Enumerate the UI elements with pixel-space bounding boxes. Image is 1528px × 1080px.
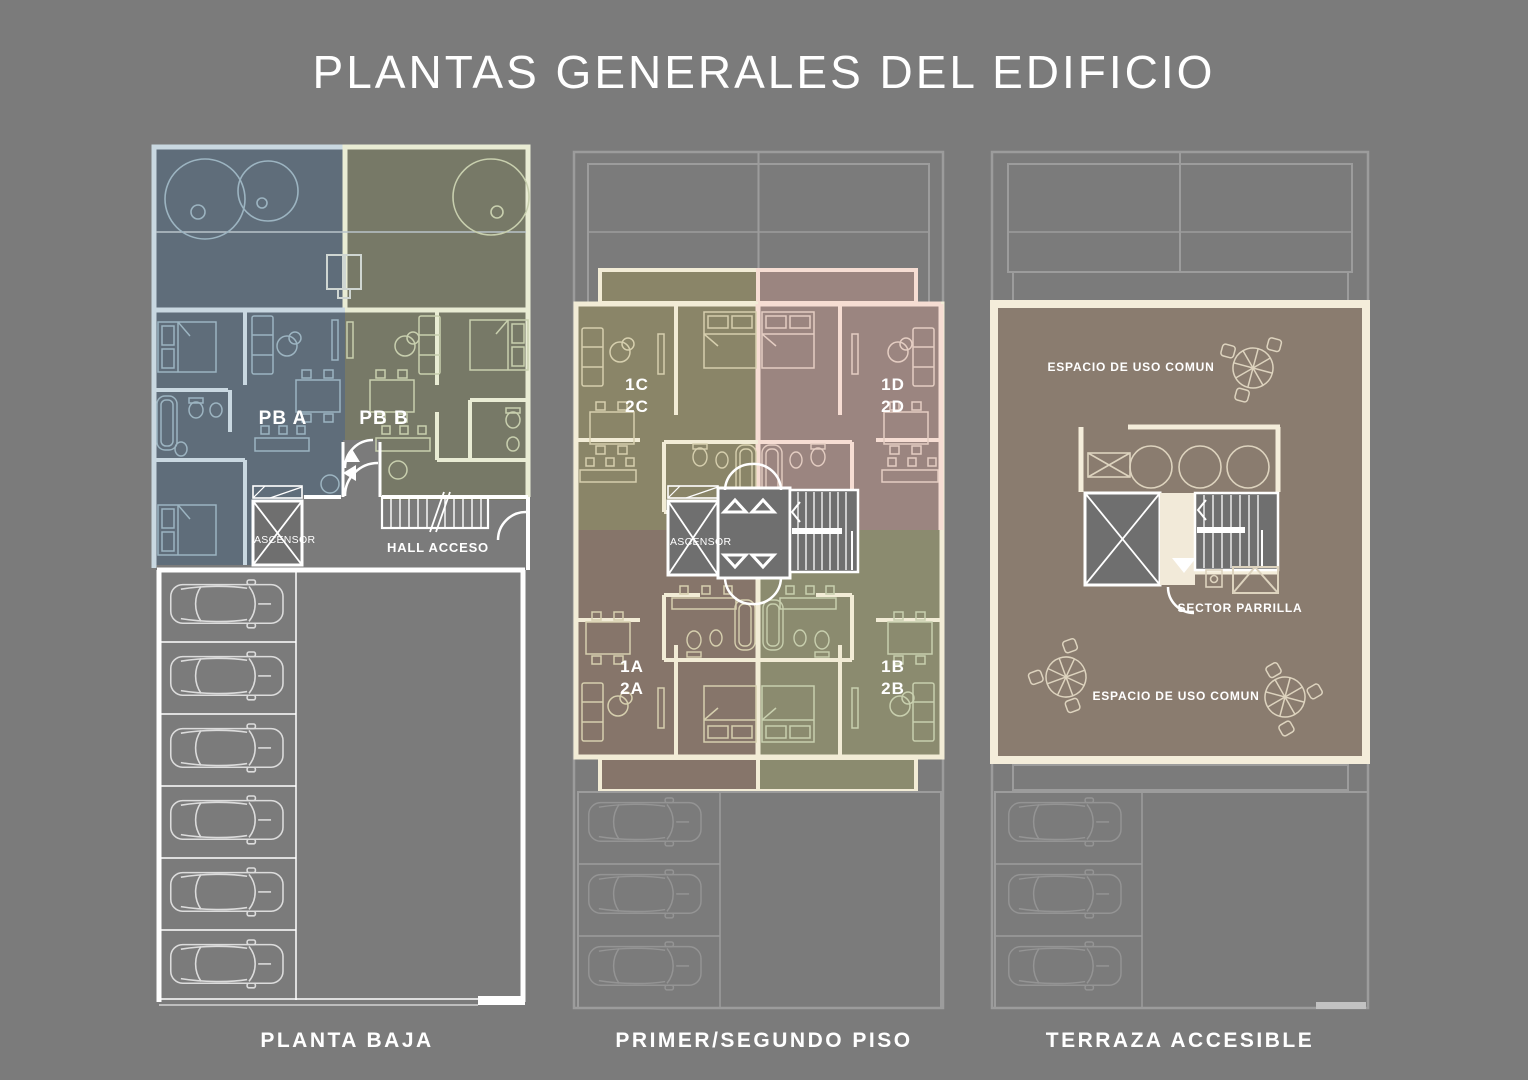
hall-door-arc — [498, 512, 526, 540]
core-landing — [1160, 493, 1195, 585]
plan-caption: PRIMER/SEGUNDO PISO — [615, 1029, 912, 1052]
plan-terraza: ESPACIO DE USO COMUN SECTOR PARRILLA ESP… — [992, 152, 1368, 1052]
car-icon — [589, 870, 701, 918]
elevator-label: ASCENSOR — [254, 534, 315, 546]
common-space-label-bottom: ESPACIO DE USO COMUN — [1092, 689, 1259, 703]
balcony — [600, 270, 758, 303]
floor-plans-canvas: PLANTAS GENERALES DEL EDIFICIO — [0, 0, 1528, 1080]
car-icon — [171, 868, 283, 916]
balcony — [758, 758, 916, 791]
unit-label-1c: 1C — [625, 375, 649, 394]
unit-label-2b: 2B — [881, 679, 905, 698]
unit-label-1b: 1B — [881, 657, 905, 676]
hall-label: HALL ACCESO — [387, 540, 489, 555]
plan-caption: PLANTA BAJA — [260, 1029, 433, 1052]
ghost-parking — [995, 765, 1368, 1009]
garden-pbb — [345, 145, 530, 310]
car-icon — [171, 796, 283, 844]
unit-label-2d: 2D — [881, 397, 905, 416]
car-icon — [589, 942, 701, 990]
garden-pba — [152, 145, 345, 310]
unit-label-pbb: PB B — [359, 408, 408, 429]
plan-planta-baja: ASCENSOR HALL ACCESO PB A PB B — [152, 145, 530, 1052]
stairs-icon — [790, 490, 858, 572]
parking-area — [157, 570, 525, 1005]
elevator-label: ASCENSOR — [670, 536, 731, 548]
car-icon — [171, 724, 283, 772]
unit-label-1d: 1D — [881, 375, 905, 394]
balcony — [758, 270, 916, 303]
elevator-icon — [253, 486, 302, 565]
plan-primer-segundo: ASCENSOR 1C 2C 1D 2D 1A 2A 1B 2B PRIMER/… — [574, 152, 943, 1052]
elevator-icon — [1085, 493, 1160, 585]
unit-label-2a: 2A — [620, 679, 644, 698]
page-title: PLANTAS GENERALES DEL EDIFICIO — [313, 46, 1216, 98]
unit-label-pba: PB A — [259, 408, 308, 429]
unit-label-1a: 1A — [620, 657, 644, 676]
car-icon — [1009, 870, 1121, 918]
landing — [718, 488, 790, 578]
ghost-parking — [578, 792, 941, 1008]
parrilla-label: SECTOR PARRILLA — [1178, 601, 1303, 615]
hall-floor — [302, 495, 345, 570]
car-icon — [1009, 798, 1121, 846]
common-space-label-top: ESPACIO DE USO COMUN — [1047, 360, 1214, 374]
stairs-icon — [1195, 493, 1278, 570]
car-icon — [171, 940, 283, 988]
car-icon — [171, 580, 283, 628]
car-icon — [171, 652, 283, 700]
plan-caption: TERRAZA ACCESIBLE — [1046, 1029, 1314, 1052]
car-icon — [589, 798, 701, 846]
balcony — [600, 758, 758, 791]
unit-label-2c: 2C — [625, 397, 649, 416]
car-icon — [1009, 942, 1121, 990]
plan-sheet: PLANTAS GENERALES DEL EDIFICIO — [0, 0, 1528, 1080]
stairs-icon — [382, 492, 488, 532]
